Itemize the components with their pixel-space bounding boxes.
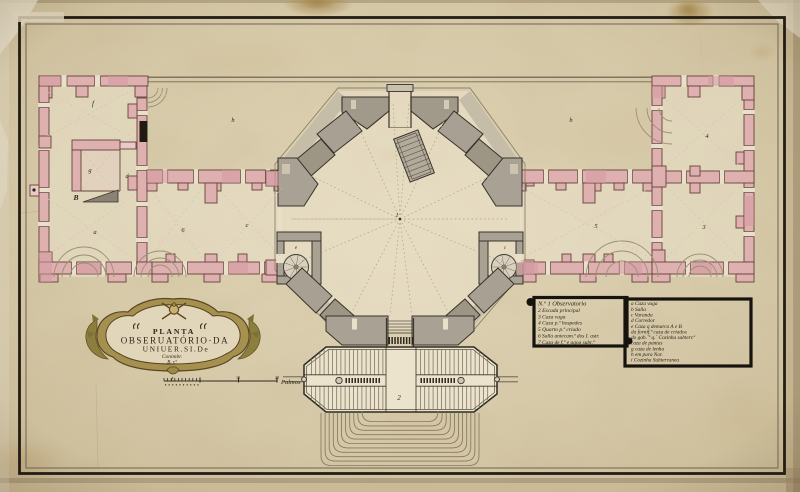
svg-text:Conimbr.: Conimbr. — [162, 354, 182, 360]
svg-text:h: h — [569, 117, 572, 124]
svg-text:6 Salla antecam.ª dos I. astr.: 6 Salla antecam.ª dos I. astr. — [538, 334, 600, 340]
svg-text:B. r.ª: B. r.ª — [167, 360, 177, 366]
svg-text:N.º 1 Observatorio: N.º 1 Observatorio — [537, 301, 586, 308]
svg-text:UNIUER.SI.De: UNIUER.SI.De — [143, 345, 210, 354]
svg-text:B: B — [72, 193, 78, 202]
svg-text:5 Quarto p.ª criado: 5 Quarto p.ª criado — [538, 327, 581, 333]
svg-text:h: h — [231, 117, 234, 124]
svg-text:c: c — [246, 222, 249, 229]
svg-text:4 Caza p.ª hospedes: 4 Caza p.ª hospedes — [538, 320, 582, 327]
svg-text:20: 20 — [275, 375, 279, 380]
svg-text:a: a — [93, 229, 96, 236]
svg-text:i Cozinha Subterranea: i Cozinha Subterranea — [631, 358, 679, 364]
svg-text:1: 1 — [396, 213, 399, 219]
svg-text:7 Caza de f.º e agoa subt.ª: 7 Caza de f.º e agoa subt.ª — [538, 339, 595, 346]
svg-text:2 Escada principal: 2 Escada principal — [538, 308, 580, 314]
svg-text:10: 10 — [236, 375, 240, 380]
svg-text:Palmos: Palmos — [280, 379, 301, 386]
svg-text:2: 2 — [397, 394, 401, 402]
svg-text:3 Caza vaga: 3 Caza vaga — [537, 314, 566, 320]
